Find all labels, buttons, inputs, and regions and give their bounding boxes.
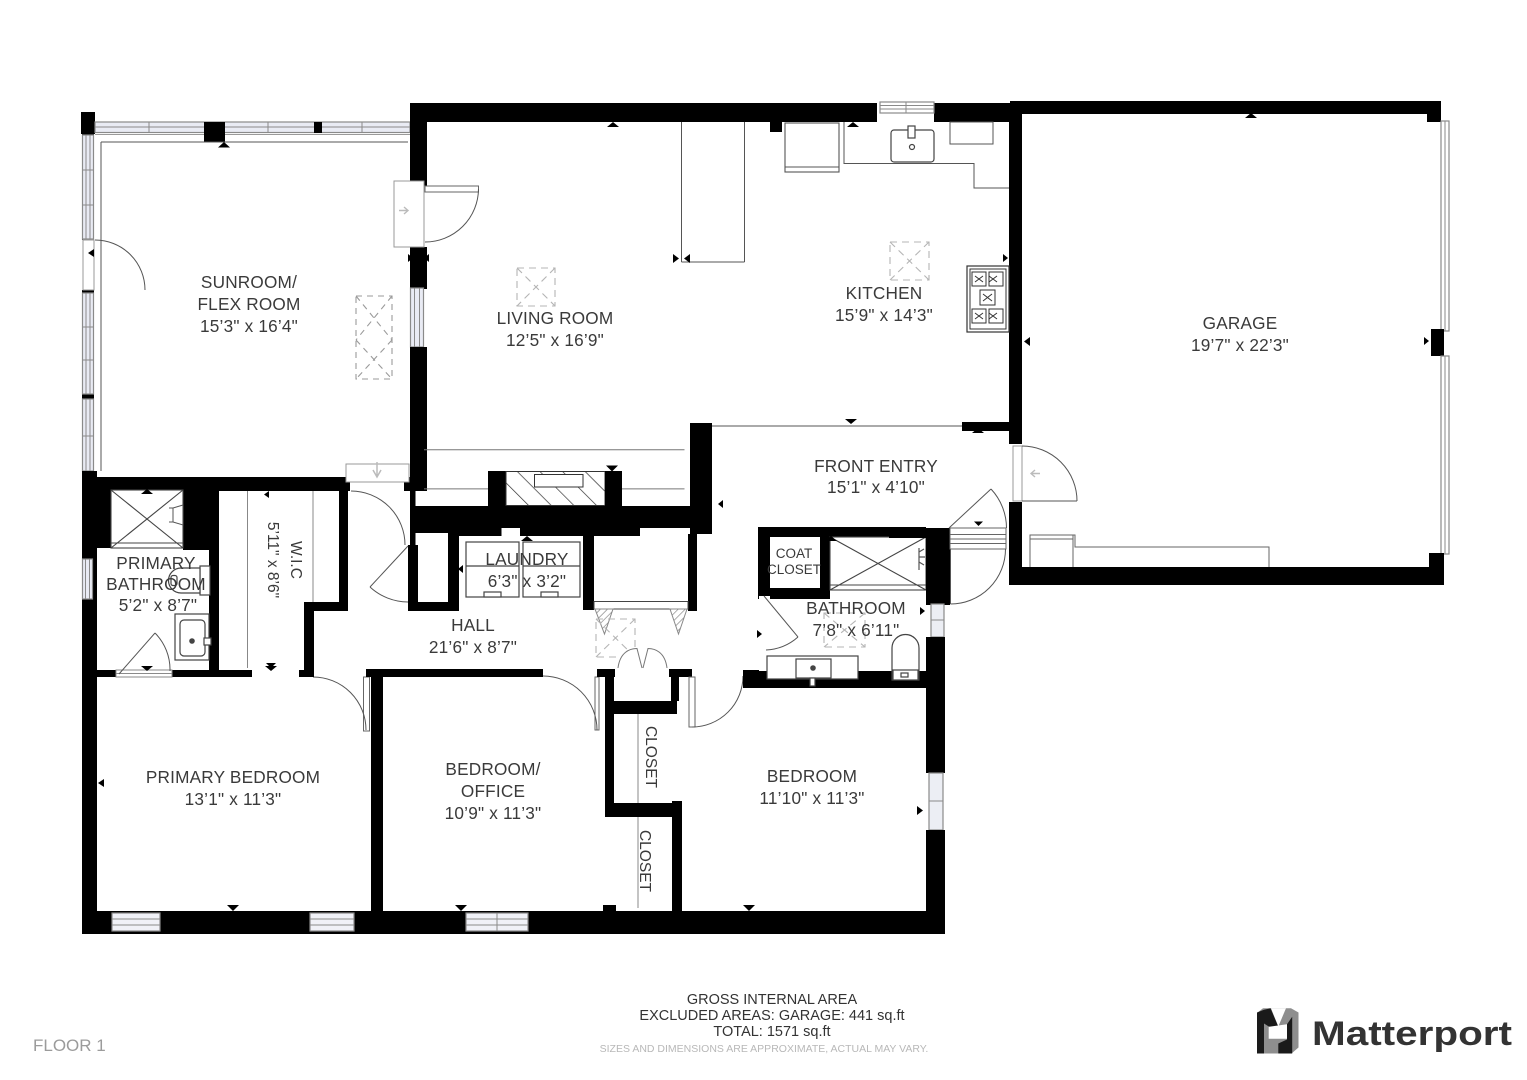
svg-text:15’9" x 14’3": 15’9" x 14’3" xyxy=(835,305,933,325)
svg-text:5’2" x 8’7": 5’2" x 8’7" xyxy=(119,595,197,615)
svg-text:Matterport: Matterport xyxy=(1312,1015,1512,1053)
svg-text:15’3" x 16’4": 15’3" x 16’4" xyxy=(200,316,298,336)
svg-text:GARAGE: GARAGE xyxy=(1203,313,1278,333)
svg-text:SIZES AND DIMENSIONS ARE APPRO: SIZES AND DIMENSIONS ARE APPROXIMATE, AC… xyxy=(600,1043,929,1055)
svg-text:10’9" x 11’3": 10’9" x 11’3" xyxy=(445,803,542,823)
svg-text:CLOSET: CLOSET xyxy=(767,562,821,577)
svg-text:5’11" x 8’6": 5’11" x 8’6" xyxy=(264,522,281,598)
svg-text:HALL: HALL xyxy=(451,615,495,635)
svg-text:19’7" x 22’3": 19’7" x 22’3" xyxy=(1191,335,1289,355)
svg-text:15’1" x 4’10": 15’1" x 4’10" xyxy=(827,477,925,497)
svg-text:FLOOR 1: FLOOR 1 xyxy=(33,1036,106,1055)
svg-text:SUNROOM/: SUNROOM/ xyxy=(201,272,297,292)
svg-text:OFFICE: OFFICE xyxy=(461,781,525,801)
svg-text:TOTAL: 1571 sq.ft: TOTAL: 1571 sq.ft xyxy=(713,1024,830,1040)
svg-text:CLOSET: CLOSET xyxy=(636,830,653,893)
svg-text:GROSS INTERNAL AREA: GROSS INTERNAL AREA xyxy=(687,992,858,1008)
svg-text:FRONT ENTRY: FRONT ENTRY xyxy=(814,456,938,476)
svg-text:12’5" x 16’9": 12’5" x 16’9" xyxy=(506,330,604,350)
svg-text:PRIMARY: PRIMARY xyxy=(116,553,196,573)
svg-text:KITCHEN: KITCHEN xyxy=(846,283,923,303)
svg-text:EXCLUDED AREAS: GARAGE: 441 sq: EXCLUDED AREAS: GARAGE: 441 sq.ft xyxy=(639,1008,904,1024)
svg-text:BEDROOM/: BEDROOM/ xyxy=(445,759,540,779)
svg-text:COAT: COAT xyxy=(776,546,813,561)
svg-text:21’6" x 8’7": 21’6" x 8’7" xyxy=(429,637,517,657)
svg-text:PRIMARY BEDROOM: PRIMARY BEDROOM xyxy=(146,767,320,787)
svg-text:CLOSET: CLOSET xyxy=(642,726,659,789)
svg-text:7’8" x 6’11": 7’8" x 6’11" xyxy=(813,620,900,640)
svg-text:BATHROOM: BATHROOM xyxy=(806,598,906,618)
svg-text:13’1" x 11’3": 13’1" x 11’3" xyxy=(185,789,282,809)
svg-text:BEDROOM: BEDROOM xyxy=(767,766,857,786)
svg-text:LAUNDRY: LAUNDRY xyxy=(485,549,569,569)
svg-text:W.I.C: W.I.C xyxy=(287,541,304,579)
svg-text:LIVING ROOM: LIVING ROOM xyxy=(497,308,614,328)
svg-text:6’3" x 3’2": 6’3" x 3’2" xyxy=(488,571,566,591)
svg-text:BATHROOM: BATHROOM xyxy=(106,574,206,594)
svg-text:FLEX ROOM: FLEX ROOM xyxy=(197,294,300,314)
svg-text:11’10" x 11’3": 11’10" x 11’3" xyxy=(759,788,864,808)
